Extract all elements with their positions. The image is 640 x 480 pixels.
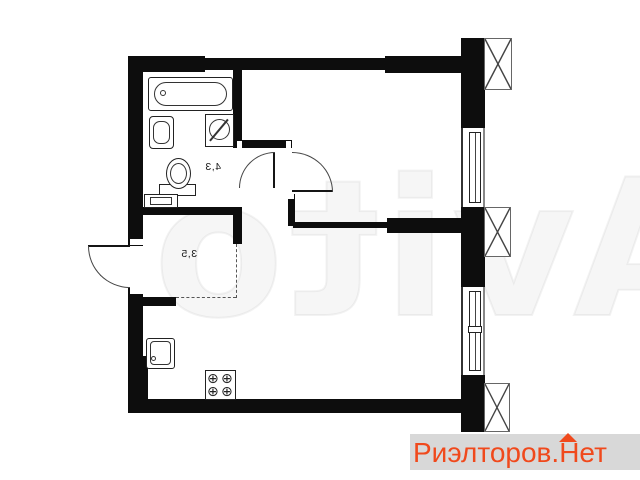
wall-bathroom-bottom (143, 207, 242, 215)
wall-room-divider-thick (387, 218, 463, 233)
shaft-top-icon (484, 38, 512, 90)
kitchen-sink-drain (151, 356, 156, 361)
room-door-arc (292, 152, 333, 192)
jamb-room-door (288, 194, 294, 199)
jamb-entrance-bottom (130, 288, 143, 294)
wall-left-upper (128, 56, 143, 246)
wall-bottom (128, 399, 463, 413)
toilet-bowl-inner (170, 163, 187, 184)
bathtub-drain (160, 90, 166, 96)
zone-dashed-horizontal (176, 297, 236, 298)
window-lower-outer-edge (483, 287, 485, 375)
wall-top-right (385, 56, 462, 73)
window-upper-glass-line (475, 133, 476, 202)
zone-dashed-vertical (236, 244, 237, 298)
wall-right-top (461, 38, 485, 128)
window-upper-frame (469, 132, 481, 203)
wall-below-bathroom (233, 207, 242, 244)
floorplan-canvas: Avito (0, 0, 640, 480)
stove-burner-icon: ⊕ (221, 385, 233, 399)
wall-top-middle (205, 58, 385, 70)
shaft-middle-icon (484, 207, 511, 257)
bathroom-sink-inner (153, 121, 170, 144)
wall-right-bottom (461, 375, 485, 432)
window-upper-inner-edge (461, 128, 463, 207)
jamb-bath-right (286, 141, 291, 148)
wall-room-divider-thin (293, 222, 387, 228)
shaft-bottom-icon (484, 383, 510, 432)
jamb-entrance-top (130, 239, 143, 245)
kitchen-sink-inner (150, 341, 171, 365)
brand-text: Риэлторов.Нет (413, 437, 607, 469)
wall-bathroom-right (233, 68, 242, 148)
bathroom-door-arc (239, 152, 275, 188)
window-lower-mullion (468, 326, 482, 333)
wall-right-middle (461, 207, 485, 287)
window-upper-outer-edge (483, 128, 485, 207)
brand-roof-icon (559, 433, 577, 442)
window-lower-inner-edge (461, 287, 463, 375)
entrance-door-arc (88, 246, 130, 288)
stove-burner-icon: ⊕ (207, 385, 219, 399)
bathroom-shelf-inner (150, 197, 172, 205)
hallway-area-label: 3,5 (171, 248, 207, 260)
bathroom-area-label: 4,3 (195, 161, 231, 173)
wall-hall-stub (130, 297, 176, 306)
jamb-bath-left (237, 141, 242, 148)
